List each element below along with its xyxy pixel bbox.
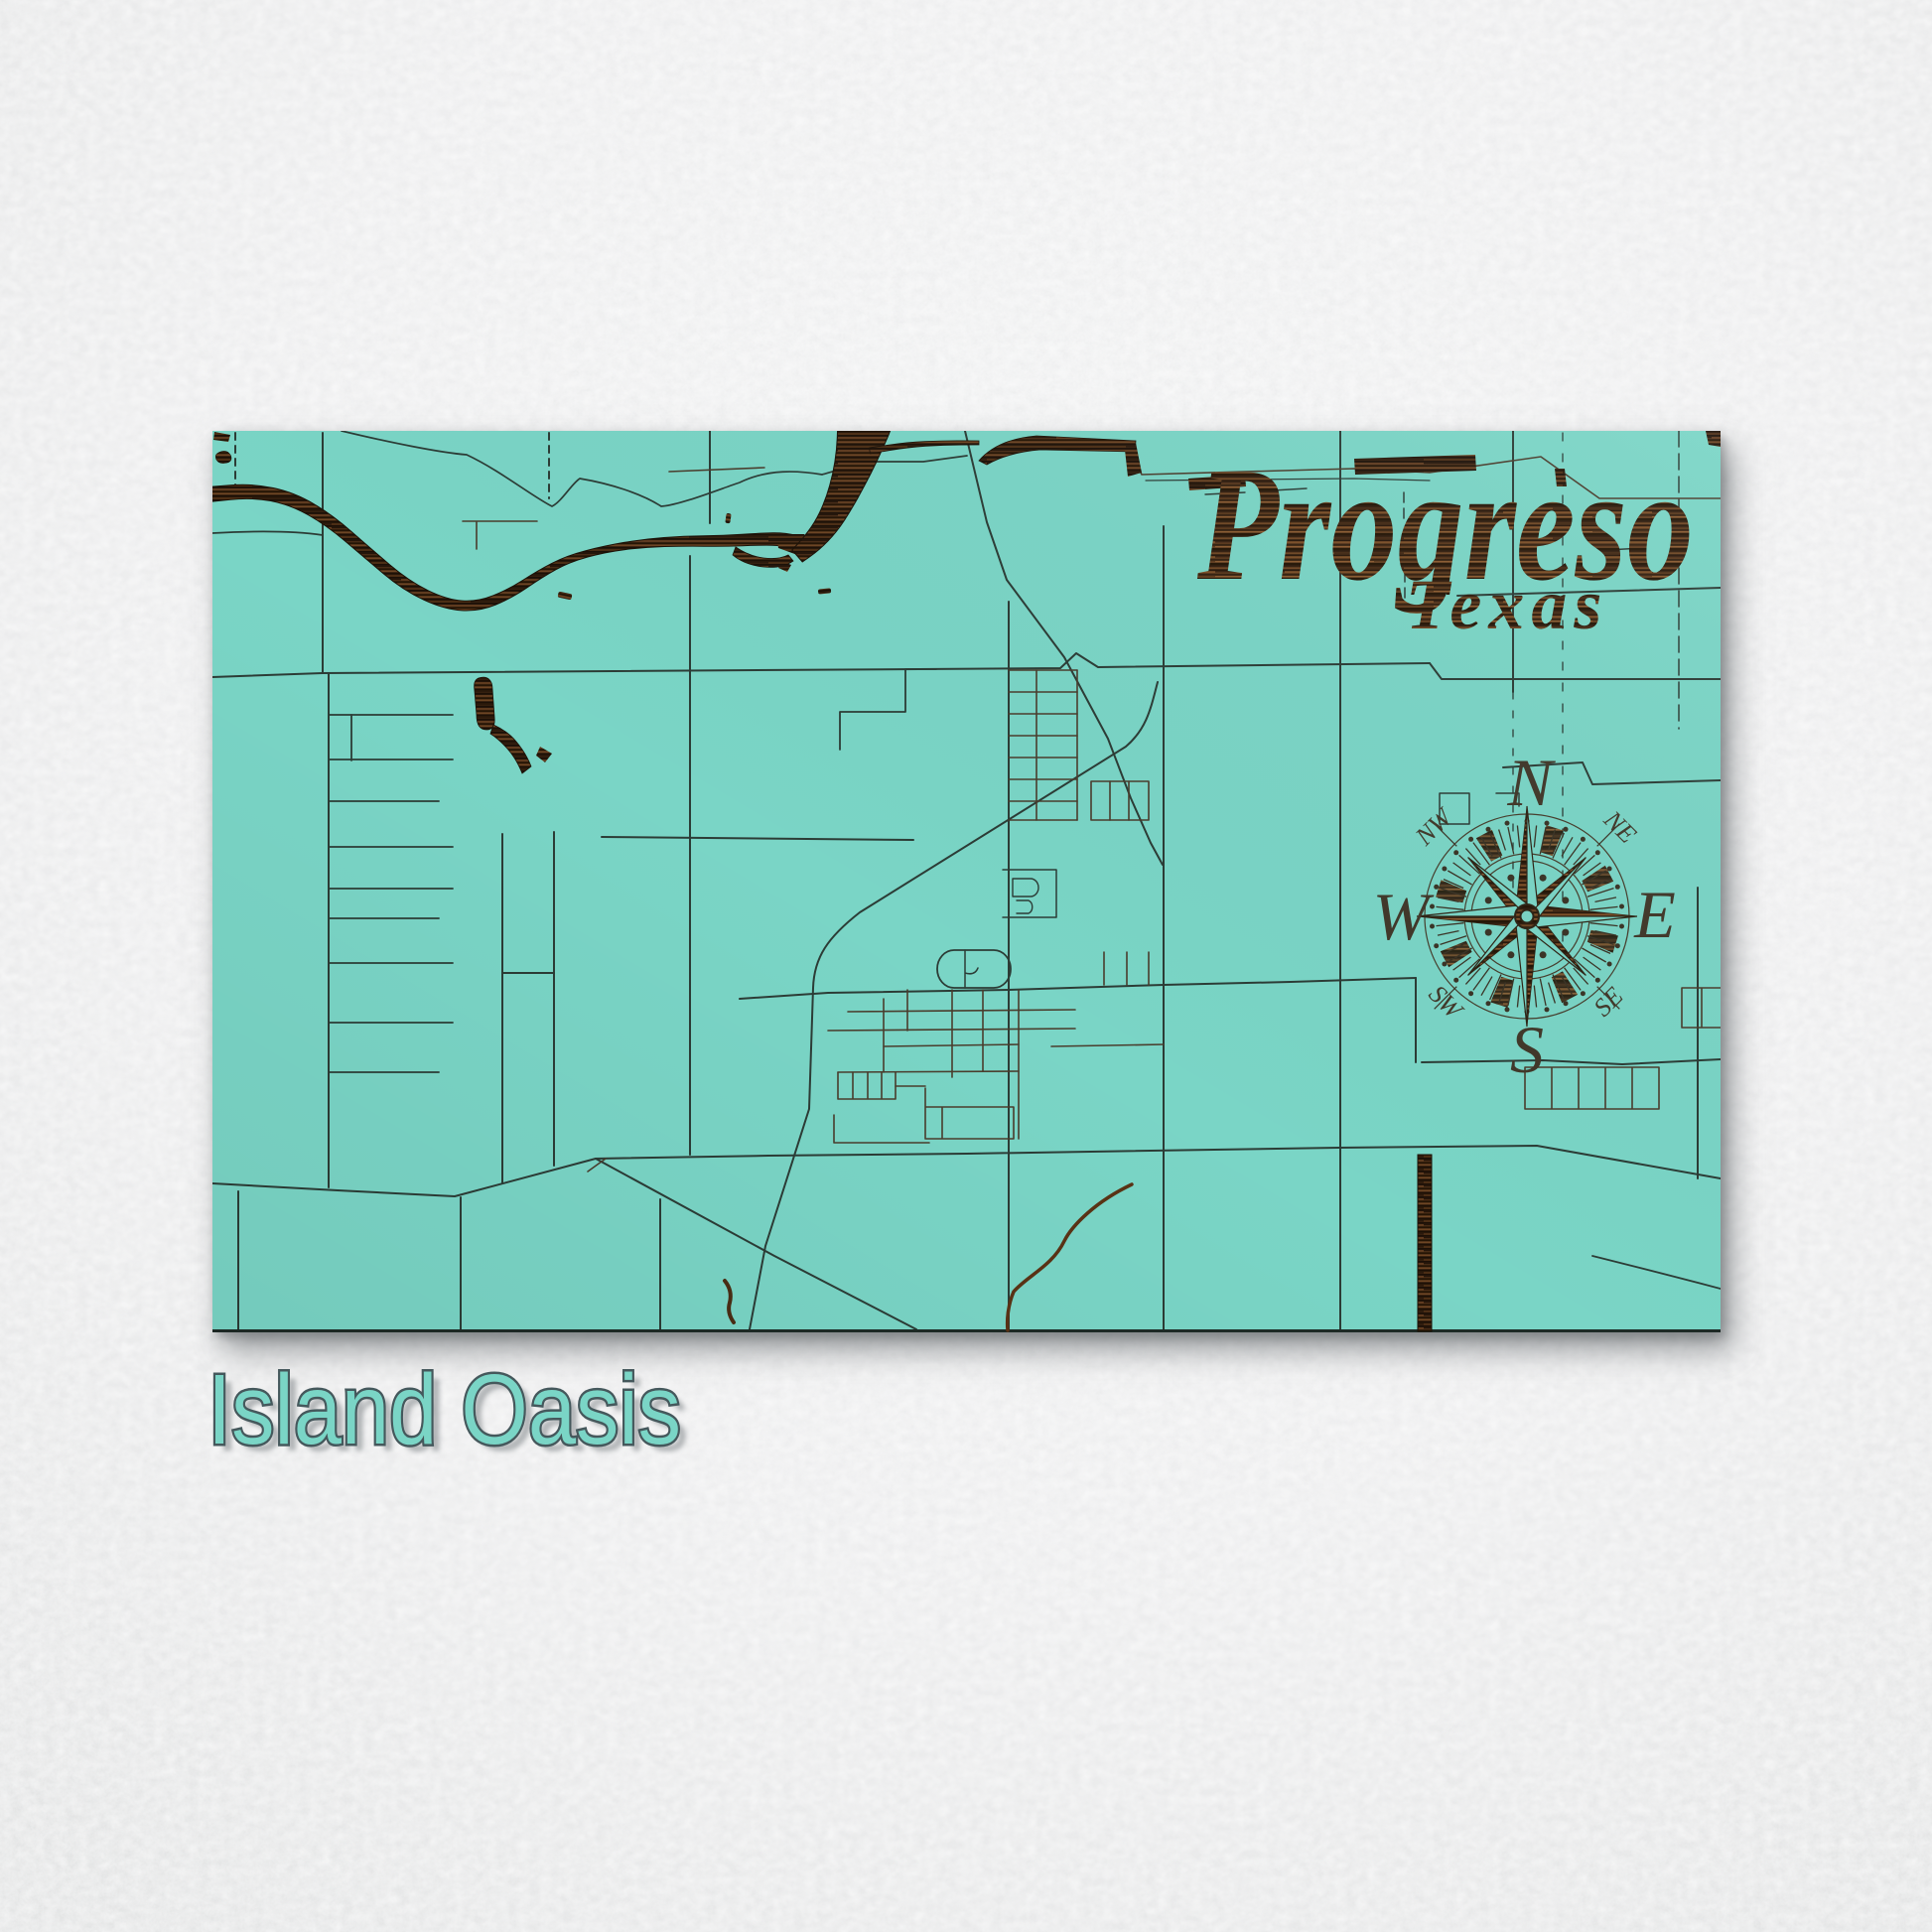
svg-text:Island Oasis: Island Oasis: [207, 1354, 681, 1465]
